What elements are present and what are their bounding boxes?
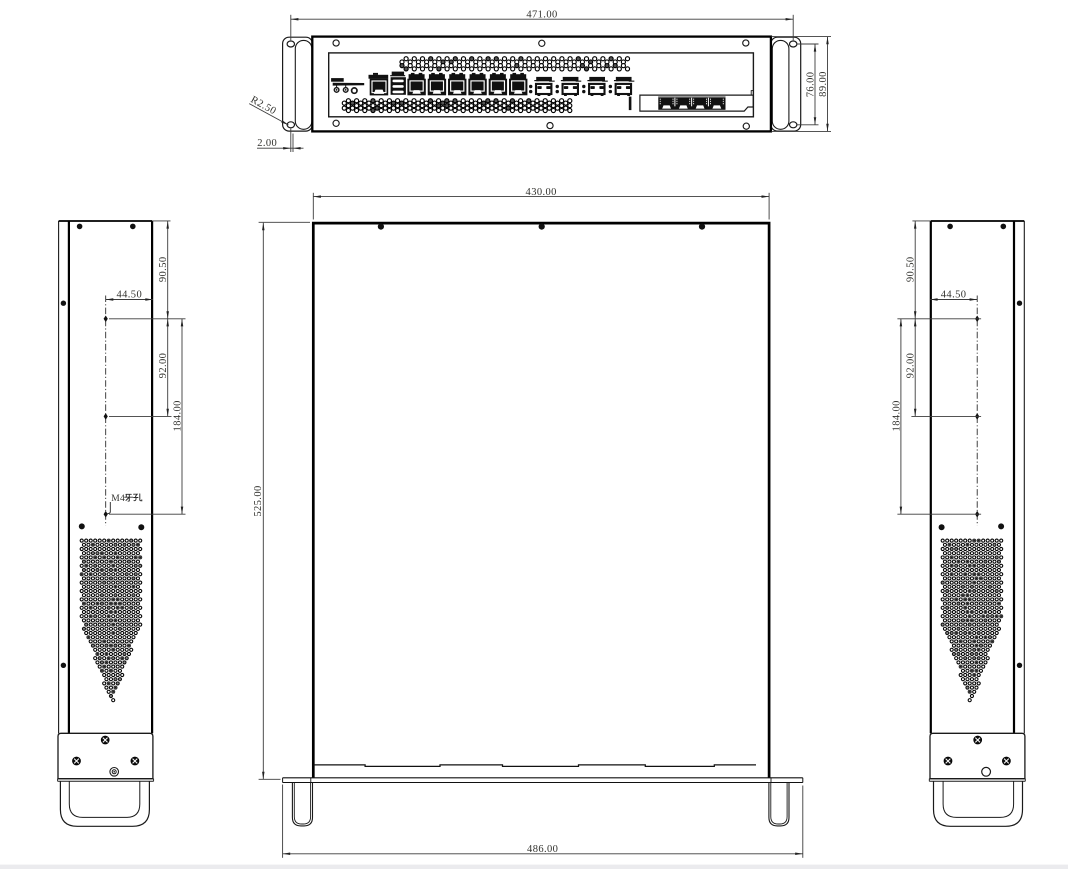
- svg-text:44.50: 44.50: [116, 290, 142, 301]
- svg-text:525.00: 525.00: [253, 485, 264, 516]
- svg-text:2.00: 2.00: [257, 138, 277, 149]
- svg-text:430.00: 430.00: [526, 187, 557, 198]
- svg-text:184.00: 184.00: [892, 400, 903, 431]
- svg-text:76.00: 76.00: [805, 72, 816, 98]
- svg-text:471.00: 471.00: [526, 10, 557, 21]
- svg-text:90.50: 90.50: [158, 256, 169, 282]
- svg-text:90.50: 90.50: [906, 256, 917, 282]
- svg-text:486.00: 486.00: [527, 844, 558, 855]
- svg-text:92.00: 92.00: [906, 353, 917, 379]
- svg-text:184.00: 184.00: [173, 400, 184, 431]
- svg-text:92.00: 92.00: [158, 353, 169, 379]
- svg-text:89.00: 89.00: [818, 71, 829, 97]
- svg-text:R2.50: R2.50: [249, 94, 278, 117]
- svg-text:M4: M4: [111, 494, 125, 504]
- svg-text:44.50: 44.50: [941, 290, 967, 301]
